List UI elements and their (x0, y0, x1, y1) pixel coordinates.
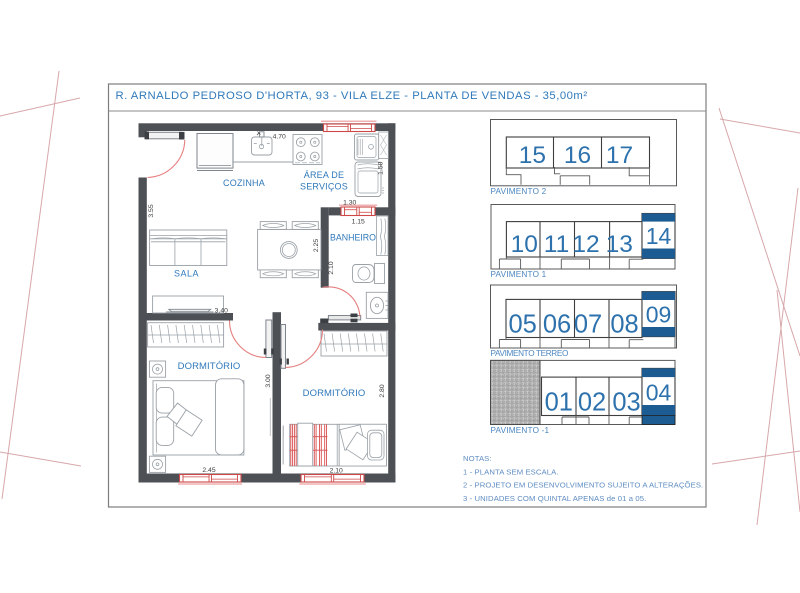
svg-text:BANHEIRO: BANHEIRO (330, 233, 376, 243)
svg-text:17: 17 (606, 142, 633, 169)
svg-text:2.45: 2.45 (202, 467, 215, 474)
svg-text:3.55: 3.55 (148, 204, 155, 217)
svg-text:11: 11 (544, 231, 569, 258)
svg-text:15: 15 (519, 142, 546, 169)
svg-text:16: 16 (564, 142, 591, 169)
svg-text:08: 08 (610, 310, 638, 338)
svg-text:SALA: SALA (174, 269, 199, 279)
svg-text:2 - PROJETO EM DESENVOLVIMENTO: 2 - PROJETO EM DESENVOLVIMENTO SUJEITO A… (463, 481, 703, 490)
svg-text:DORMITÓRIO: DORMITÓRIO (303, 388, 366, 399)
svg-text:2.25: 2.25 (313, 239, 320, 252)
svg-text:14: 14 (646, 223, 672, 249)
svg-text:SERVIÇOS: SERVIÇOS (300, 182, 348, 192)
svg-text:1 - PLANTA SEM ESCALA.: 1 - PLANTA SEM ESCALA. (463, 467, 559, 476)
svg-text:1.15: 1.15 (352, 219, 365, 226)
svg-text:2.10: 2.10 (330, 467, 343, 474)
svg-text:03: 03 (612, 388, 640, 416)
svg-text:3.00: 3.00 (265, 374, 272, 387)
svg-text:12: 12 (572, 231, 599, 258)
svg-text:DORMITÓRIO: DORMITÓRIO (178, 361, 241, 372)
svg-text:1.50: 1.50 (377, 161, 384, 174)
svg-text:R. ARNALDO PEDROSO D'HORTA, 93: R. ARNALDO PEDROSO D'HORTA, 93 - VILA EL… (116, 90, 588, 102)
svg-text:4.70: 4.70 (273, 133, 286, 140)
svg-text:PAVIMENTO TERREO: PAVIMENTO TERREO (491, 349, 569, 358)
svg-text:07: 07 (574, 310, 602, 338)
svg-text:2.80: 2.80 (379, 384, 386, 397)
svg-text:PAVIMENTO 2: PAVIMENTO 2 (491, 187, 547, 196)
svg-text:3.40: 3.40 (215, 307, 228, 314)
svg-text:02: 02 (578, 388, 606, 416)
svg-text:ÁREA DE: ÁREA DE (304, 170, 344, 180)
svg-text:06: 06 (543, 310, 571, 338)
svg-text:13: 13 (606, 231, 633, 258)
svg-text:3 - UNIDADES COM QUINTAL APENA: 3 - UNIDADES COM QUINTAL APENAS de 01 a … (463, 494, 646, 503)
svg-text:04: 04 (646, 379, 672, 405)
svg-text:PAVIMENTO 1: PAVIMENTO 1 (491, 270, 547, 279)
svg-text:09: 09 (646, 301, 672, 327)
svg-text:05: 05 (509, 310, 537, 338)
svg-text:10: 10 (511, 231, 538, 258)
svg-text:1.30: 1.30 (343, 200, 356, 207)
svg-text:PAVIMENTO -1: PAVIMENTO -1 (491, 426, 550, 435)
svg-text:01: 01 (545, 388, 573, 416)
svg-text:COZINHA: COZINHA (223, 178, 265, 188)
svg-text:NOTAS:: NOTAS: (463, 454, 492, 463)
svg-text:2.10: 2.10 (328, 261, 335, 274)
